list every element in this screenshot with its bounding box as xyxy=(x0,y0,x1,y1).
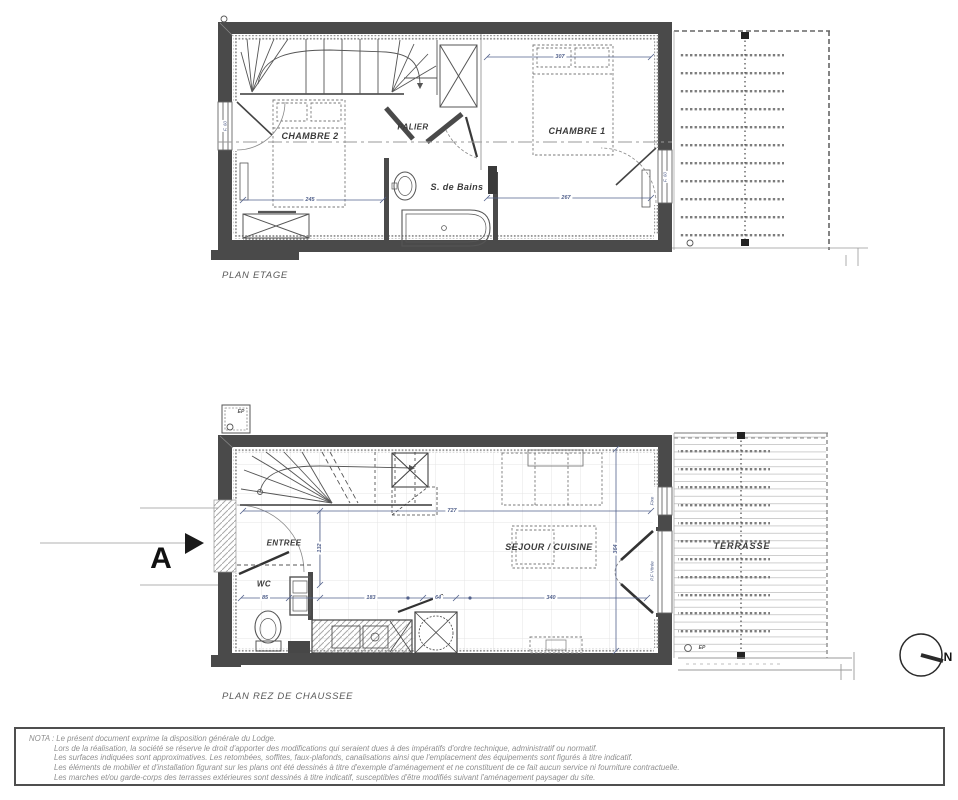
plan-linework xyxy=(0,0,958,800)
etage-staircase xyxy=(240,39,437,95)
dim-267: 267 xyxy=(559,195,572,201)
rdc-ep-box xyxy=(222,405,250,433)
north-label: N xyxy=(944,650,953,664)
dim-340: 340 xyxy=(544,595,557,601)
room-label-entree: ENTREE xyxy=(267,539,302,548)
room-label-sejour: SEJOUR / CUISINE xyxy=(505,542,592,552)
window-label-etage-left: F. 60 xyxy=(223,120,228,132)
dim-183: 183 xyxy=(364,595,377,601)
ep-label-box: EP xyxy=(238,409,245,415)
etage-partitions xyxy=(384,34,498,247)
room-label-terrasse: TERRASSE xyxy=(713,541,770,551)
nota-line-1: NOTA : Le présent document exprime la di… xyxy=(29,734,943,744)
etage-title: PLAN ETAGE xyxy=(222,270,288,281)
nota-line-4: Les éléments de mobilier et d'installati… xyxy=(54,763,943,773)
etage-closet xyxy=(440,45,477,107)
window-label-fixe: Fixe xyxy=(650,496,655,507)
dim-364: 364 xyxy=(613,542,619,555)
room-label-chambre1: CHAMBRE 1 xyxy=(548,126,605,136)
room-label-sdb: S. de Bains xyxy=(431,182,484,192)
rdc-title: PLAN REZ DE CHAUSSEE xyxy=(222,691,353,702)
dim-132: 132 xyxy=(317,541,323,554)
etage-fixtures xyxy=(240,163,650,240)
nota-line-5: Les marches et/ou garde-corps des terras… xyxy=(54,773,943,783)
section-marker-a: A xyxy=(150,542,172,576)
etage-plan xyxy=(211,16,868,266)
dim-85: 85 xyxy=(260,595,270,601)
ep-label-terrace: EP xyxy=(699,645,706,651)
rdc-terrace xyxy=(674,432,854,680)
room-label-wc: WC xyxy=(257,580,271,589)
etage-terrace xyxy=(672,31,868,266)
window-label-etage-right: F. 60 xyxy=(663,171,668,183)
nota-line-2: Lors de la réalisation, la société se ré… xyxy=(54,744,943,754)
nota-line-3: Les surfaces indiquées sont approximativ… xyxy=(54,753,943,763)
floorplan-sheet: PLAN ETAGE PLAN REZ DE CHAUSSEE CHAMBRE … xyxy=(0,0,958,800)
room-label-palier: PALIER xyxy=(397,123,428,132)
nota-box: NOTA : Le présent document exprime la di… xyxy=(14,727,945,786)
dim-727: 727 xyxy=(445,508,458,514)
dim-307: 307 xyxy=(553,54,566,60)
dim-245: 245 xyxy=(303,197,316,203)
north-compass xyxy=(900,634,943,676)
rdc-right-openings xyxy=(658,487,672,613)
room-label-chambre2: CHAMBRE 2 xyxy=(281,131,338,141)
dim-64: 64 xyxy=(433,595,443,601)
door-label-pf-vitree: P.F Vitrée xyxy=(650,560,655,582)
